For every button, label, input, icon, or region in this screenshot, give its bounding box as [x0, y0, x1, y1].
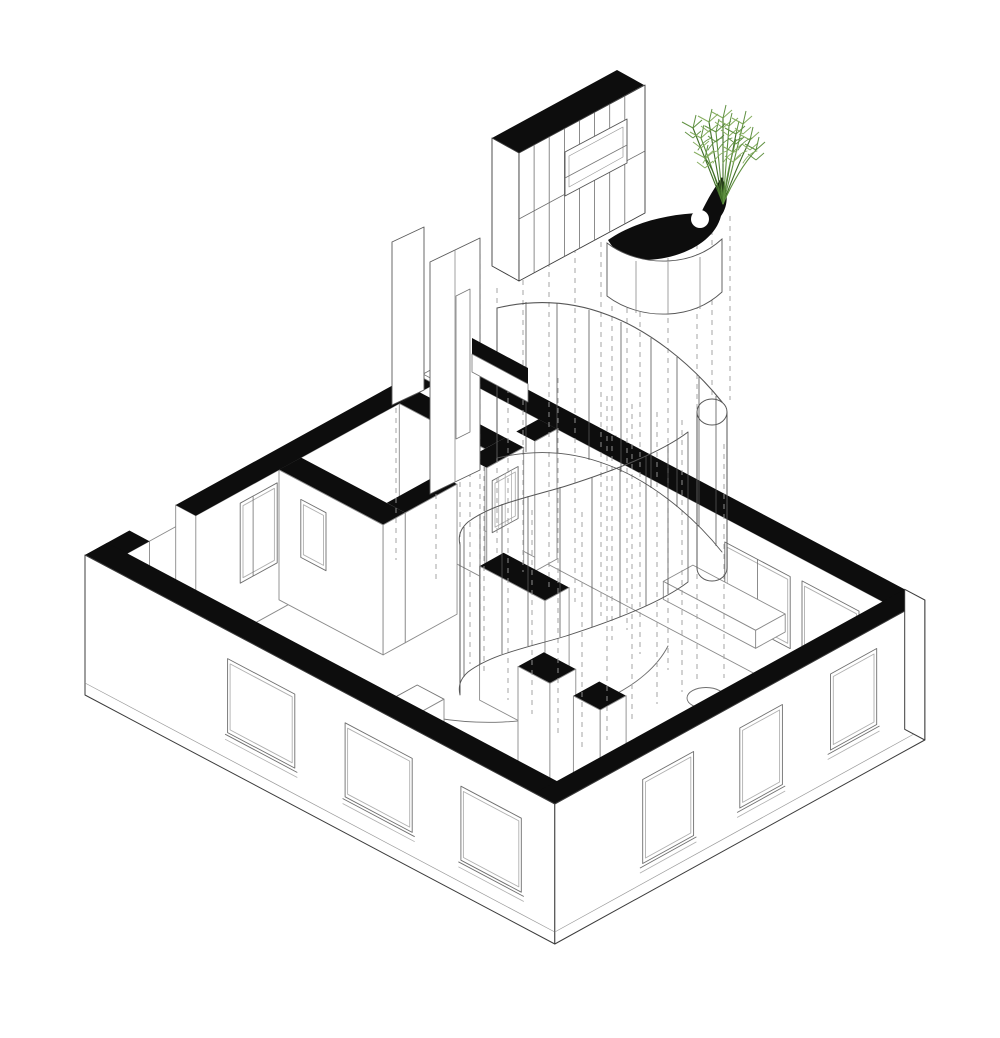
potted-plant: [682, 105, 765, 204]
facade-end-cap: [905, 589, 925, 740]
plant-leaf: [743, 127, 751, 134]
canopy-column-hole: [691, 210, 709, 228]
wall-face: [383, 513, 405, 655]
plant-leaf: [712, 112, 723, 118]
cabinet-side: [492, 138, 519, 281]
wall-face: [535, 429, 557, 571]
plant-leaf: [698, 116, 709, 122]
plant-leaf: [721, 130, 729, 136]
plant-leaf: [682, 122, 693, 128]
plant-frond: [708, 138, 722, 150]
plant-leaf: [697, 162, 705, 168]
plant-leaf: [715, 122, 723, 128]
glass-panel: [392, 227, 424, 405]
plant-leaf: [756, 153, 764, 160]
axonometric-plan-drawing: [0, 0, 1000, 1038]
glass-top-edge: [497, 303, 722, 402]
drawing-canvas: [0, 0, 1000, 1038]
glass-cylinder-top: [697, 399, 727, 425]
